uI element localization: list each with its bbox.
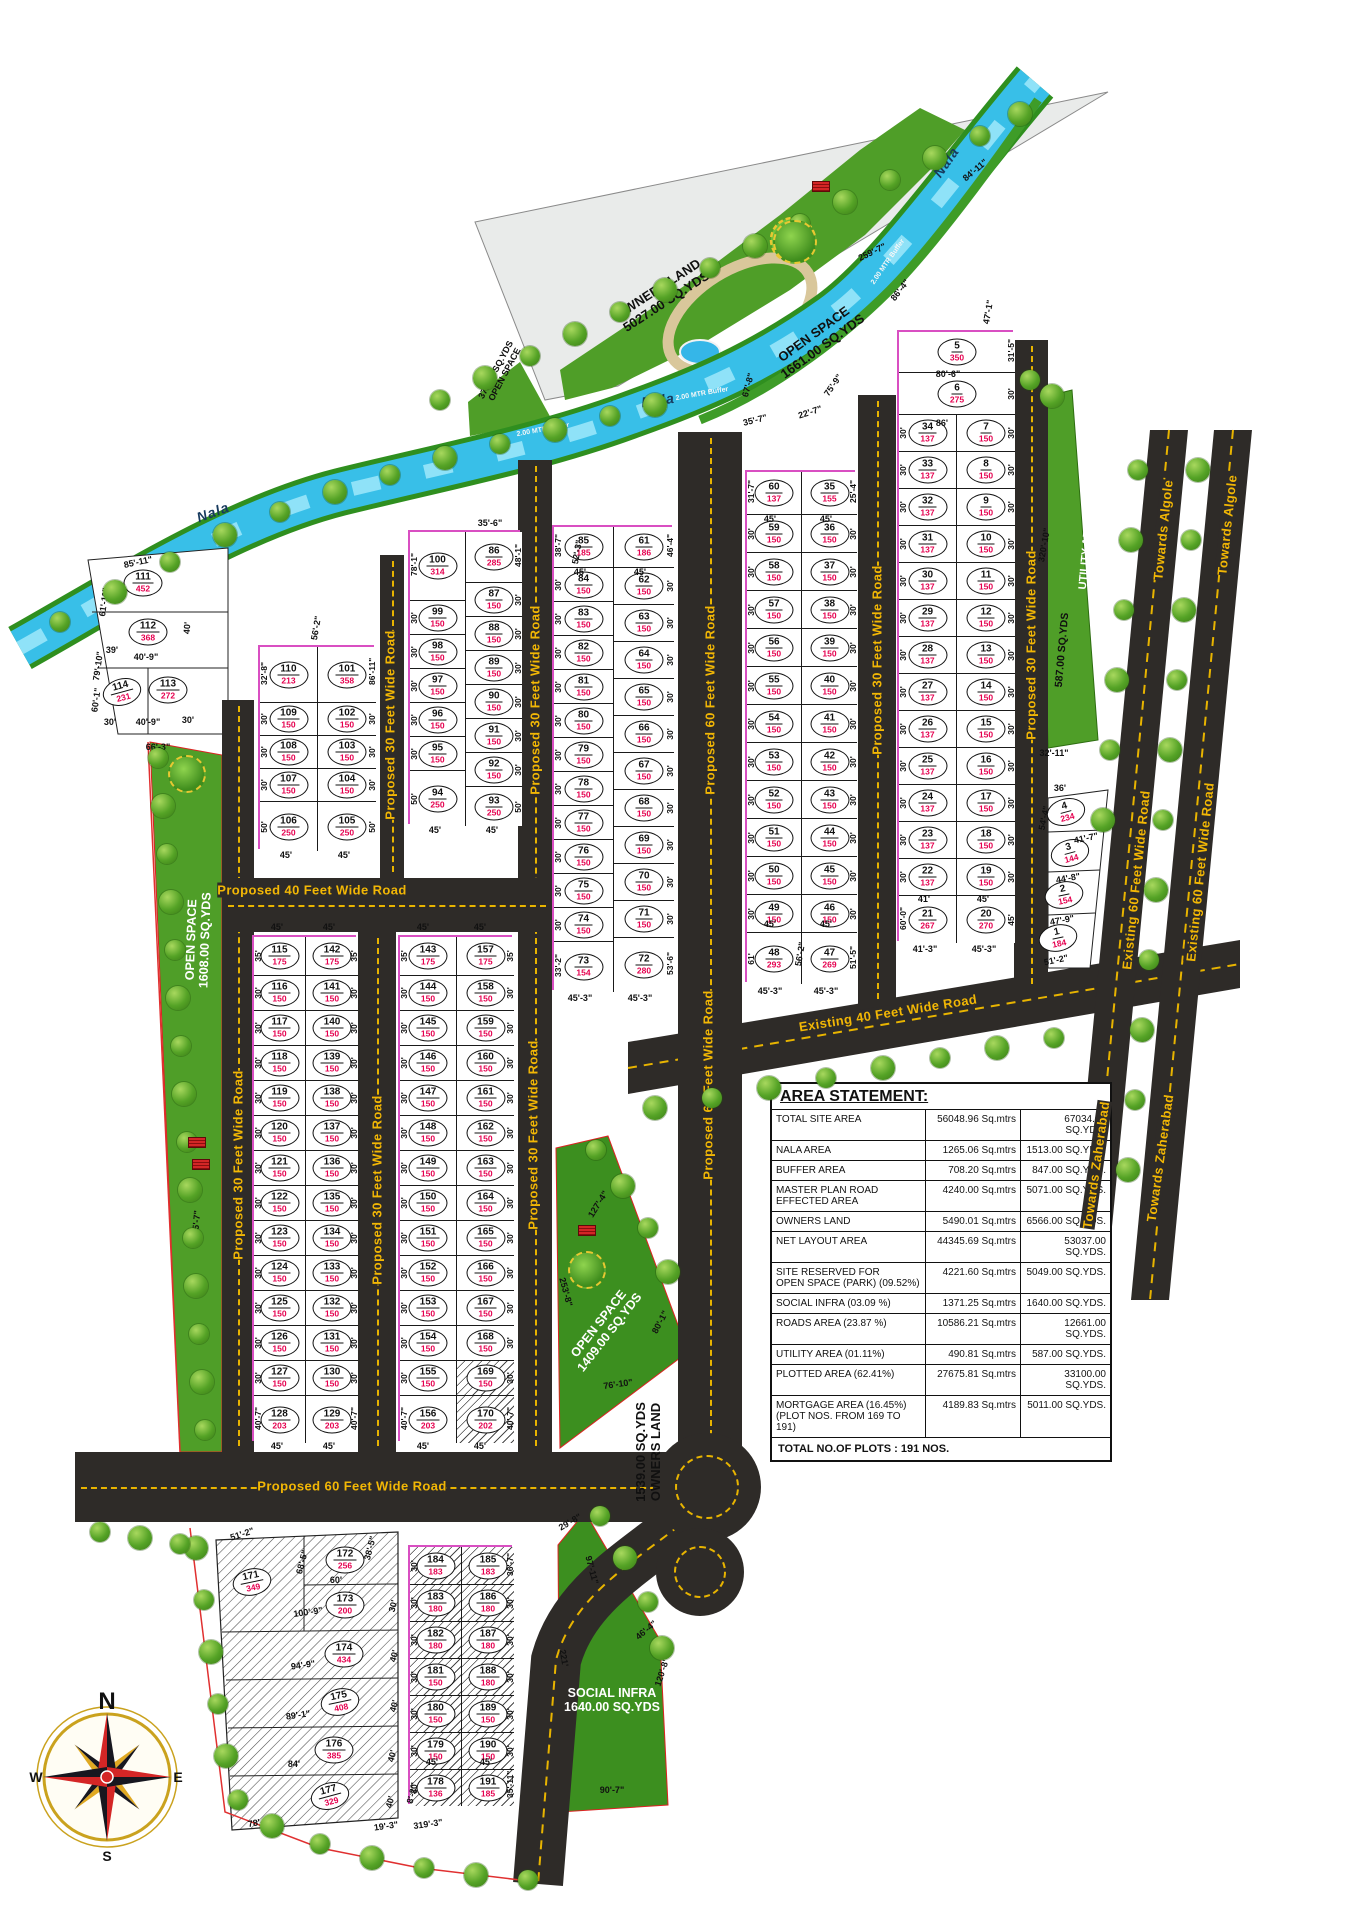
tree-icon bbox=[1186, 458, 1210, 482]
tree-icon bbox=[518, 1870, 538, 1890]
plot-oval: 109150 bbox=[269, 706, 308, 733]
plot-cell: 8115030' bbox=[554, 669, 614, 703]
plot-block-M: 6013731'-7"5915030'5815030'5715030'56150… bbox=[745, 470, 855, 982]
plot-oval: 186180 bbox=[469, 1590, 508, 1617]
plot-number: 95 bbox=[429, 743, 446, 754]
plot-number: 156 bbox=[417, 1409, 440, 1420]
plot-side-dimension: 30' bbox=[399, 1053, 409, 1073]
plot-oval: 184183 bbox=[416, 1552, 455, 1579]
plot-area-value: 150 bbox=[767, 535, 781, 544]
dimension-label: 45'-3" bbox=[568, 993, 592, 1003]
tree-icon bbox=[171, 1036, 191, 1056]
plot-cell: 12920340'-7" bbox=[306, 1395, 358, 1443]
tree-icon bbox=[490, 434, 510, 454]
dimension-label: 86' bbox=[936, 418, 948, 428]
tree-icon bbox=[638, 1592, 658, 1612]
plot-cell: 18115030' bbox=[410, 1658, 462, 1695]
tree-icon bbox=[172, 1082, 196, 1106]
plot-number: 118 bbox=[268, 1053, 290, 1064]
plot-oval: 156203 bbox=[409, 1406, 448, 1433]
dimension-label: 30' bbox=[182, 715, 194, 725]
plot-oval: 36150 bbox=[810, 520, 849, 547]
plot-side-dimension: 78'-1" bbox=[409, 556, 419, 576]
plot-cell: 15415030' bbox=[400, 1325, 457, 1360]
plot-oval: 27137 bbox=[908, 679, 947, 706]
plot-cell: 15115030' bbox=[400, 1220, 457, 1255]
plot-number: 126 bbox=[268, 1333, 291, 1344]
plot-cell: 13815030' bbox=[306, 1080, 358, 1115]
plot-oval: 157175 bbox=[466, 943, 505, 970]
plot-oval: 61186 bbox=[625, 534, 664, 561]
plot-number: 6 bbox=[951, 383, 963, 394]
plot-number: 106 bbox=[277, 816, 300, 827]
plot-side-dimension: 30' bbox=[505, 1333, 515, 1353]
plot-oval: 132150 bbox=[313, 1295, 352, 1322]
plot-oval: 143175 bbox=[409, 943, 448, 970]
plot-number: 116 bbox=[268, 983, 290, 994]
plot-number: 83 bbox=[575, 608, 592, 619]
plot-area-value: 150 bbox=[979, 768, 993, 777]
plot-cell: 14715030' bbox=[400, 1080, 457, 1115]
plot-oval: 170202 bbox=[466, 1406, 505, 1433]
plot-number: 187 bbox=[477, 1630, 500, 1641]
plot-cell: 5015030' bbox=[747, 856, 802, 894]
plot-area-value: 144 bbox=[1064, 853, 1080, 865]
plot-block-D: 10031478'-1"9915030'9815030'9715030'9615… bbox=[408, 530, 520, 824]
plot-oval: 142175 bbox=[313, 943, 352, 970]
plot-cell: 1415030' bbox=[957, 673, 1015, 710]
plot-side-dimension: 32'-8" bbox=[259, 665, 269, 685]
plot-area-value: 150 bbox=[576, 790, 590, 799]
plot-area-value: 150 bbox=[272, 1345, 286, 1354]
plot-cell: 15315030' bbox=[400, 1290, 457, 1325]
area-statement-value: 4189.83 Sq.mtrs bbox=[926, 1396, 1021, 1437]
tree-icon bbox=[600, 406, 620, 426]
plot-cell: 8815030' bbox=[466, 616, 522, 650]
plot-cell: 18618030' bbox=[462, 1584, 514, 1621]
plot-side-dimension: 30' bbox=[746, 866, 756, 886]
area-statement-value: 490.81 Sq.mtrs bbox=[926, 1345, 1021, 1364]
plot-area-value: 150 bbox=[767, 611, 781, 620]
plot-cell: 4315030' bbox=[802, 780, 857, 818]
plot-cell: 1215030' bbox=[957, 599, 1015, 636]
plot-area-value: 150 bbox=[478, 1170, 492, 1179]
plot-cell: 19118535'-11" bbox=[462, 1769, 514, 1806]
plot-number: 185 bbox=[477, 1555, 500, 1566]
plot-oval: 163150 bbox=[466, 1155, 505, 1182]
plot-cell: 7228053'-6" bbox=[614, 937, 674, 992]
plot-oval: 107150 bbox=[269, 772, 308, 799]
plot-area-value: 150 bbox=[430, 755, 444, 764]
plot-area-value: 256 bbox=[338, 1562, 352, 1571]
flower-tree-icon bbox=[168, 755, 206, 793]
plot-area-value: 150 bbox=[478, 995, 492, 1004]
area-statement-item: BUFFER AREA bbox=[772, 1161, 926, 1180]
plot-number: 19 bbox=[977, 867, 994, 878]
plot-side-dimension: 30' bbox=[1006, 460, 1016, 480]
tree-icon bbox=[183, 1228, 203, 1248]
plot-area-value: 150 bbox=[767, 725, 781, 734]
plot-side-dimension: 30' bbox=[505, 1228, 515, 1248]
tree-icon bbox=[643, 393, 667, 417]
plot-area-value: 434 bbox=[337, 1656, 351, 1665]
plot-oval: 42150 bbox=[810, 748, 849, 775]
plot-side-dimension: 30' bbox=[409, 1741, 419, 1761]
plot-area-value: 150 bbox=[421, 1380, 435, 1389]
plot-area-value: 267 bbox=[920, 921, 934, 930]
plot-side-dimension: 30' bbox=[513, 692, 523, 712]
plot-area-value: 137 bbox=[767, 495, 781, 504]
plot-cell: 7615030' bbox=[554, 839, 614, 873]
plot-number: 36 bbox=[821, 523, 838, 534]
plot-oval: 76150 bbox=[564, 843, 603, 870]
plot-number: 101 bbox=[336, 664, 359, 675]
plot-oval: 167150 bbox=[466, 1295, 505, 1322]
area-statement-value: 33100.00 SQ.YDS. bbox=[1021, 1365, 1110, 1395]
road-name-label: Proposed 40 Feet Wide Road bbox=[217, 883, 406, 898]
plot-oval: 79150 bbox=[564, 741, 603, 768]
plot-oval: 58150 bbox=[755, 558, 794, 585]
plot-side-dimension: 30' bbox=[553, 779, 563, 799]
plot-side-dimension: 30' bbox=[505, 1741, 515, 1761]
plot-side-dimension: 30' bbox=[399, 1263, 409, 1283]
plot-side-dimension: 30' bbox=[746, 676, 756, 696]
plot-area-value: 150 bbox=[767, 801, 781, 810]
plot-area-value: 150 bbox=[430, 721, 444, 730]
compass-north-label: N bbox=[98, 1688, 115, 1716]
plot-area-value: 150 bbox=[767, 573, 781, 582]
plot-cell: 6118646'-4" bbox=[614, 527, 674, 567]
plot-side-dimension: 30' bbox=[349, 1193, 359, 1213]
plot-area-value: 150 bbox=[576, 688, 590, 697]
dimension-label: 45' bbox=[323, 1441, 335, 1451]
plot-number: 113 bbox=[157, 680, 179, 691]
plot-oval: 10150 bbox=[967, 531, 1006, 558]
plot-cell: 15215030' bbox=[400, 1255, 457, 1290]
plot-cell: 2613730' bbox=[899, 710, 957, 747]
plot-area-value: 150 bbox=[487, 771, 501, 780]
plot-number: 49 bbox=[765, 903, 782, 914]
plot-oval: 139150 bbox=[313, 1050, 352, 1077]
plot-oval: 6275 bbox=[938, 380, 977, 407]
flower-tree-icon bbox=[773, 220, 817, 264]
tree-icon bbox=[543, 418, 567, 442]
plot-oval: 38150 bbox=[810, 596, 849, 623]
tree-icon bbox=[157, 844, 177, 864]
tree-icon bbox=[433, 446, 457, 470]
area-statement-row: BUFFER AREA708.20 Sq.mtrs847.00 SQ.YDS. bbox=[772, 1161, 1110, 1181]
plot-number: 78 bbox=[575, 778, 592, 789]
plot-area-value: 329 bbox=[324, 1796, 340, 1808]
plot-side-dimension: 30' bbox=[848, 676, 858, 696]
plot-oval: 33137 bbox=[908, 457, 947, 484]
plot-area-value: 150 bbox=[478, 1205, 492, 1214]
plot-area-value: 150 bbox=[428, 1679, 442, 1688]
plot-oval: 48293 bbox=[755, 945, 794, 972]
plot-number: 169 bbox=[474, 1368, 497, 1379]
plot-area-value: 150 bbox=[421, 1065, 435, 1074]
plot-number: 93 bbox=[485, 796, 502, 807]
plot-number: 190 bbox=[477, 1741, 500, 1752]
plot-number: 92 bbox=[485, 759, 502, 770]
plot-side-dimension: 30' bbox=[665, 613, 675, 633]
plot-area-value: 150 bbox=[822, 535, 836, 544]
plot-oval: 93250 bbox=[475, 793, 514, 820]
plot-oval: 147150 bbox=[409, 1085, 448, 1112]
area-statement-value: 12661.00 SQ.YDS. bbox=[1021, 1314, 1110, 1344]
plot-cell: 1915030' bbox=[957, 858, 1015, 895]
road-name-label: Proposed 60 Feet Wide Road bbox=[701, 990, 716, 1179]
plot-side-dimension: 35' bbox=[399, 946, 409, 966]
plot-side-dimension: 30' bbox=[367, 709, 377, 729]
plot-area-value: 150 bbox=[637, 625, 651, 634]
plot-side-dimension: 30' bbox=[505, 1263, 515, 1283]
plot-oval: 47269 bbox=[810, 945, 849, 972]
plot-area-value: 150 bbox=[487, 601, 501, 610]
plot-oval: 83150 bbox=[564, 605, 603, 632]
plot-cell: 14317535' bbox=[400, 937, 457, 975]
plot-number: 89 bbox=[485, 657, 502, 668]
plot-side-dimension: 30' bbox=[513, 624, 523, 644]
plot-area-value: 150 bbox=[979, 805, 993, 814]
plot-number: 38 bbox=[821, 599, 838, 610]
plot-cell: 535031'-5" bbox=[899, 332, 1015, 372]
plot-area-value: 150 bbox=[421, 995, 435, 1004]
plot-area-value: 150 bbox=[637, 588, 651, 597]
plot-area-value: 250 bbox=[430, 800, 444, 809]
plot-cell: 10315030' bbox=[318, 735, 376, 768]
dimension-label: 45'-3" bbox=[628, 993, 652, 1003]
plot-number: 183 bbox=[424, 1593, 447, 1604]
plot-block-G: 11517535'11615030'11715030'11815030'1191… bbox=[252, 935, 356, 1441]
plot-cell: 14915030' bbox=[400, 1150, 457, 1185]
plot-cell: 1815030' bbox=[957, 821, 1015, 858]
plot-area-value: 150 bbox=[428, 1716, 442, 1725]
plot-oval: 173200 bbox=[326, 1592, 365, 1619]
road-name-label: Proposed 30 Feet Wide Road bbox=[370, 1095, 385, 1284]
plot-area-value: 150 bbox=[822, 725, 836, 734]
plot-side-dimension: 30' bbox=[665, 761, 675, 781]
plot-oval: 7150 bbox=[967, 420, 1006, 447]
plot-cell: 3113730' bbox=[899, 525, 957, 562]
plot-number: 160 bbox=[474, 1053, 497, 1064]
tree-icon bbox=[166, 986, 190, 1010]
plot-number: 142 bbox=[321, 946, 344, 957]
plot-oval: 99150 bbox=[418, 604, 457, 631]
plot-side-dimension: 30' bbox=[746, 562, 756, 582]
plot-number: 103 bbox=[336, 742, 359, 753]
plot-area-value: 150 bbox=[487, 669, 501, 678]
plot-cell: 11715030' bbox=[254, 1010, 306, 1045]
plot-cell: 1515030' bbox=[957, 710, 1015, 747]
plot-side-dimension: 30' bbox=[665, 798, 675, 818]
plot-number: 149 bbox=[417, 1158, 440, 1169]
plot-cell: 15915030' bbox=[457, 1010, 514, 1045]
plot-oval: 77150 bbox=[564, 809, 603, 836]
plot-cell: 6013731'-7" bbox=[747, 472, 802, 514]
plot-oval: 149150 bbox=[409, 1155, 448, 1182]
area-statement-row: SITE RESERVED FOR OPEN SPACE (PARK) (09.… bbox=[772, 1263, 1110, 1294]
plot-area-value: 358 bbox=[340, 676, 354, 685]
plot-number: 88 bbox=[485, 623, 502, 634]
plot-area-value: 175 bbox=[325, 958, 339, 967]
plot-cell: 14515030' bbox=[400, 1010, 457, 1045]
plot-number: 109 bbox=[277, 709, 300, 720]
plot-number: 163 bbox=[474, 1158, 497, 1169]
tree-icon bbox=[360, 1846, 384, 1870]
plot-number: 179 bbox=[424, 1741, 447, 1752]
plot-number: 21 bbox=[919, 909, 936, 920]
plot-side-dimension: 30' bbox=[409, 1593, 419, 1613]
plot-oval: 37150 bbox=[810, 558, 849, 585]
plot-area-value: 180 bbox=[428, 1642, 442, 1651]
plot-oval: 14150 bbox=[967, 679, 1006, 706]
tree-icon bbox=[757, 1076, 781, 1100]
plot-number: 161 bbox=[474, 1088, 497, 1099]
plot-number: 34 bbox=[919, 423, 936, 434]
plot-oval: 85185 bbox=[564, 534, 603, 561]
tree-icon bbox=[930, 1048, 950, 1068]
plot-oval: 105250 bbox=[328, 813, 367, 840]
plot-area-value: 154 bbox=[576, 969, 590, 978]
plot-oval: 128203 bbox=[260, 1406, 299, 1433]
plot-cell: 7115030' bbox=[614, 900, 674, 937]
area-statement-value: 5011.00 SQ.YDS. bbox=[1021, 1396, 1110, 1437]
plot-oval: 126150 bbox=[260, 1330, 299, 1357]
plot-area-value: 150 bbox=[430, 687, 444, 696]
dimension-label: 45' bbox=[271, 922, 283, 932]
plot-number: 42 bbox=[821, 751, 838, 762]
plot-side-dimension: 30' bbox=[848, 790, 858, 810]
plot-oval: 183180 bbox=[416, 1590, 455, 1617]
plot-oval: 18150 bbox=[967, 827, 1006, 854]
plot-side-dimension: 30' bbox=[505, 1053, 515, 1073]
plot-side-dimension: 30' bbox=[898, 719, 908, 739]
plot-area-value: 150 bbox=[325, 1310, 339, 1319]
plot-oval: 111452 bbox=[124, 570, 163, 597]
plot-number: 129 bbox=[321, 1409, 344, 1420]
tree-icon bbox=[1040, 384, 1064, 408]
plot-cell: 10135886'-11" bbox=[318, 647, 376, 702]
plot-area-value: 203 bbox=[325, 1421, 339, 1430]
plot-side-dimension: 30' bbox=[665, 872, 675, 892]
plot-number: 174 bbox=[333, 1644, 356, 1655]
plot-cell: 11517535' bbox=[254, 937, 306, 975]
plot-side-dimension: 30' bbox=[253, 1368, 263, 1388]
plot-number: 70 bbox=[635, 872, 652, 883]
plot-side-dimension: 35' bbox=[349, 946, 359, 966]
plot-side-dimension: 30' bbox=[253, 1263, 263, 1283]
plot-oval: 12150 bbox=[967, 605, 1006, 632]
tree-icon bbox=[871, 1056, 895, 1080]
plot-cell: 18718030' bbox=[462, 1621, 514, 1658]
plot-cell: 16615030' bbox=[457, 1255, 514, 1290]
plot-number: 87 bbox=[485, 589, 502, 600]
area-statement-row: OWNERS LAND5490.01 Sq.mtrs6566.00 SQ.YDS… bbox=[772, 1212, 1110, 1232]
plot-cell: 12315030' bbox=[254, 1220, 306, 1255]
plot-number: 7 bbox=[980, 423, 992, 434]
plot-number: 9 bbox=[980, 497, 992, 508]
plot-side-dimension: 30' bbox=[409, 1704, 419, 1724]
tree-icon bbox=[586, 1140, 606, 1160]
plot-area-value: 150 bbox=[576, 654, 590, 663]
plot-cell: 18218030' bbox=[410, 1621, 462, 1658]
plot-number: 23 bbox=[919, 830, 936, 841]
plot-cell: 16415030' bbox=[457, 1185, 514, 1220]
plot-side-dimension: 30' bbox=[253, 1333, 263, 1353]
plot-area-value: 150 bbox=[979, 620, 993, 629]
plot-number: 153 bbox=[417, 1298, 440, 1309]
plot-cell: 6415030' bbox=[614, 641, 674, 678]
plot-area-value: 285 bbox=[487, 559, 501, 568]
plot-cell: 6815030' bbox=[614, 789, 674, 826]
plot-side-dimension: 30' bbox=[553, 881, 563, 901]
plot-cell: 5415030' bbox=[747, 704, 802, 742]
tree-icon bbox=[310, 1834, 330, 1854]
plot-area-value: 150 bbox=[478, 1275, 492, 1284]
plot-oval: 117150 bbox=[260, 1015, 299, 1042]
plot-area-value: 250 bbox=[281, 828, 295, 837]
plot-oval: 16150 bbox=[967, 753, 1006, 780]
plot-number: 99 bbox=[429, 607, 446, 618]
plot-oval: 120150 bbox=[260, 1120, 299, 1147]
plot-number: 124 bbox=[268, 1263, 291, 1274]
plot-cell: 11021332'-8" bbox=[260, 647, 318, 702]
plot-area-value: 183 bbox=[428, 1567, 442, 1576]
plot-number: 132 bbox=[321, 1298, 344, 1309]
plot-area-value: 203 bbox=[421, 1421, 435, 1430]
plot-cell: 18915030' bbox=[462, 1695, 514, 1732]
plot-oval: 138150 bbox=[313, 1085, 352, 1112]
plot-side-dimension: 30' bbox=[505, 1704, 515, 1724]
plot-number: 90 bbox=[485, 691, 502, 702]
dimension-label: 45' bbox=[429, 825, 441, 835]
plot-number: 18 bbox=[977, 830, 994, 841]
plot-number: 112 bbox=[137, 622, 159, 633]
plot-cell: 11915030' bbox=[254, 1080, 306, 1115]
plot-number: 188 bbox=[477, 1667, 500, 1678]
plot-cell: 1715030' bbox=[957, 784, 1015, 821]
plot-side-dimension: 30' bbox=[505, 1088, 515, 1108]
plot-area-value: 150 bbox=[822, 573, 836, 582]
plot-oval: 168150 bbox=[466, 1330, 505, 1357]
plot-oval: 43150 bbox=[810, 786, 849, 813]
plot-area-value: 150 bbox=[637, 736, 651, 745]
plot-number: 29 bbox=[919, 608, 936, 619]
dimension-label: 45' bbox=[426, 1757, 438, 1767]
plot-cell: 13215030' bbox=[306, 1290, 358, 1325]
plot-cell: 9215030' bbox=[466, 752, 522, 786]
plot-side-dimension: 30' bbox=[1006, 608, 1016, 628]
plot-cell: 815030' bbox=[957, 451, 1015, 488]
dimension-label: 30' bbox=[104, 717, 116, 727]
area-name-label: SOCIAL INFRA 1640.00 SQ.YDS bbox=[564, 1686, 660, 1714]
plot-number: 143 bbox=[417, 946, 440, 957]
plot-oval: 146150 bbox=[409, 1050, 448, 1077]
plot-number: 152 bbox=[417, 1263, 440, 1274]
plot-side-dimension: 30' bbox=[409, 676, 419, 696]
plot-number: 147 bbox=[417, 1088, 440, 1099]
area-name-label: OPEN SPACE 1608.00 SQ.YDS bbox=[182, 892, 213, 989]
plot-oval: 41150 bbox=[810, 710, 849, 737]
dimension-label: 36' bbox=[1054, 783, 1066, 793]
area-statement-value: 44345.69 Sq.mtrs bbox=[926, 1232, 1021, 1262]
plot-area-value: 150 bbox=[487, 703, 501, 712]
plot-side-dimension: 45' bbox=[1006, 910, 1016, 930]
plot-side-dimension: 33'-2" bbox=[553, 957, 563, 977]
plot-oval: 188180 bbox=[469, 1664, 508, 1691]
plot-side-dimension: 30' bbox=[505, 1018, 515, 1038]
